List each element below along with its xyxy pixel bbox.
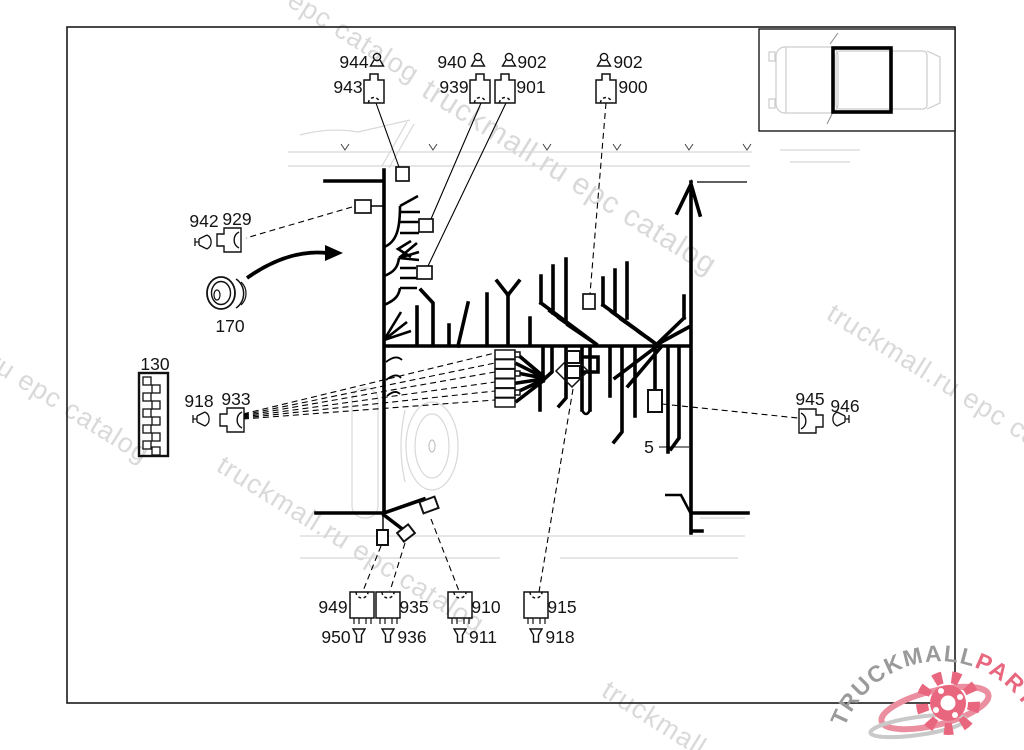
bulb-icon-911 xyxy=(454,629,466,642)
location-thumbnail xyxy=(759,29,955,131)
part-label-950[interactable]: 950 xyxy=(321,627,350,647)
bulb-icon-942 xyxy=(195,235,211,249)
watermark-text: truckmall.ru epc catalog xyxy=(0,280,155,469)
part-label-945[interactable]: 945 xyxy=(795,389,824,409)
connector-icon-945 xyxy=(799,409,823,433)
part-label-5[interactable]: 5 xyxy=(644,437,654,457)
brand-logo: TRUCKMALLPARTS xyxy=(825,640,1024,742)
thumbnail-frame xyxy=(759,29,955,131)
bulb-icon-902b xyxy=(598,53,611,66)
socket-915b xyxy=(567,366,580,378)
connector-icon-933 xyxy=(220,408,244,432)
terminal-strip xyxy=(495,350,520,407)
socket-945 xyxy=(648,390,662,412)
connector-icon-900 xyxy=(596,74,616,103)
part-label-170[interactable]: 170 xyxy=(215,316,244,336)
connector-icon-929 xyxy=(217,228,241,252)
epc-diagram-page: truckmall.ru epc catalog truckmall.ru ep… xyxy=(0,0,1024,750)
bulb-icon-936 xyxy=(382,629,394,642)
part-label-910[interactable]: 910 xyxy=(471,597,500,617)
socket-939 xyxy=(419,219,433,232)
bulb-icon-950 xyxy=(353,629,365,642)
direction-arrow xyxy=(247,245,343,278)
part-label-929[interactable]: 929 xyxy=(222,209,251,229)
bulb-icon-902a xyxy=(503,53,516,66)
part-label-949[interactable]: 949 xyxy=(318,597,347,617)
watermark-text: truckmall.ru epc catalog xyxy=(822,298,1024,487)
part-label-936[interactable]: 936 xyxy=(397,627,426,647)
grommet-170 xyxy=(207,277,246,309)
bulb-icon-918-bottom xyxy=(530,629,542,642)
part-label-902a[interactable]: 902 xyxy=(517,52,546,72)
part-label-943[interactable]: 943 xyxy=(333,77,362,97)
part-label-911[interactable]: 911 xyxy=(469,627,497,647)
socket-901 xyxy=(417,266,432,279)
part-label-940[interactable]: 940 xyxy=(437,52,466,72)
wiring-harness-diagram: truckmall.ru epc catalog truckmall.ru ep… xyxy=(0,0,1024,750)
part-label-939[interactable]: 939 xyxy=(439,77,468,97)
arrowhead xyxy=(325,245,343,261)
part-label-942[interactable]: 942 xyxy=(189,211,218,231)
harness-main-lines xyxy=(316,170,748,533)
connector-icon-935 xyxy=(376,592,400,624)
socket-943 xyxy=(396,167,409,181)
watermark-text: truckmall.ru epc catalog xyxy=(147,0,425,89)
part-label-902b[interactable]: 902 xyxy=(613,52,642,72)
part-label-130[interactable]: 130 xyxy=(140,354,169,374)
part-label-933[interactable]: 933 xyxy=(221,389,250,409)
socket-929 xyxy=(355,200,371,213)
part-label-918-bottom[interactable]: 918 xyxy=(545,627,574,647)
part-label-946[interactable]: 946 xyxy=(830,396,859,416)
part-label-918-left[interactable]: 918 xyxy=(184,391,213,411)
connector-icon-943 xyxy=(364,74,384,103)
part-label-915[interactable]: 915 xyxy=(547,597,576,617)
bulb-icon-940 xyxy=(472,53,485,66)
part-label-901[interactable]: 901 xyxy=(516,77,545,97)
connector-icon-949 xyxy=(350,592,374,624)
part-label-944[interactable]: 944 xyxy=(339,52,368,72)
part-label-900[interactable]: 900 xyxy=(618,77,647,97)
connector-icon-915 xyxy=(524,592,548,624)
bulb-icon-918-left xyxy=(193,412,209,426)
watermark-text: truckmall.ru epc catalog xyxy=(416,73,723,282)
socket-915a xyxy=(567,351,580,363)
harness-small-arcs xyxy=(386,357,402,396)
socket-949 xyxy=(377,530,388,545)
socket-900 xyxy=(583,294,595,309)
harness-assembly xyxy=(316,167,748,545)
part-label-935[interactable]: 935 xyxy=(399,597,428,617)
connector-icon-901 xyxy=(495,74,515,103)
